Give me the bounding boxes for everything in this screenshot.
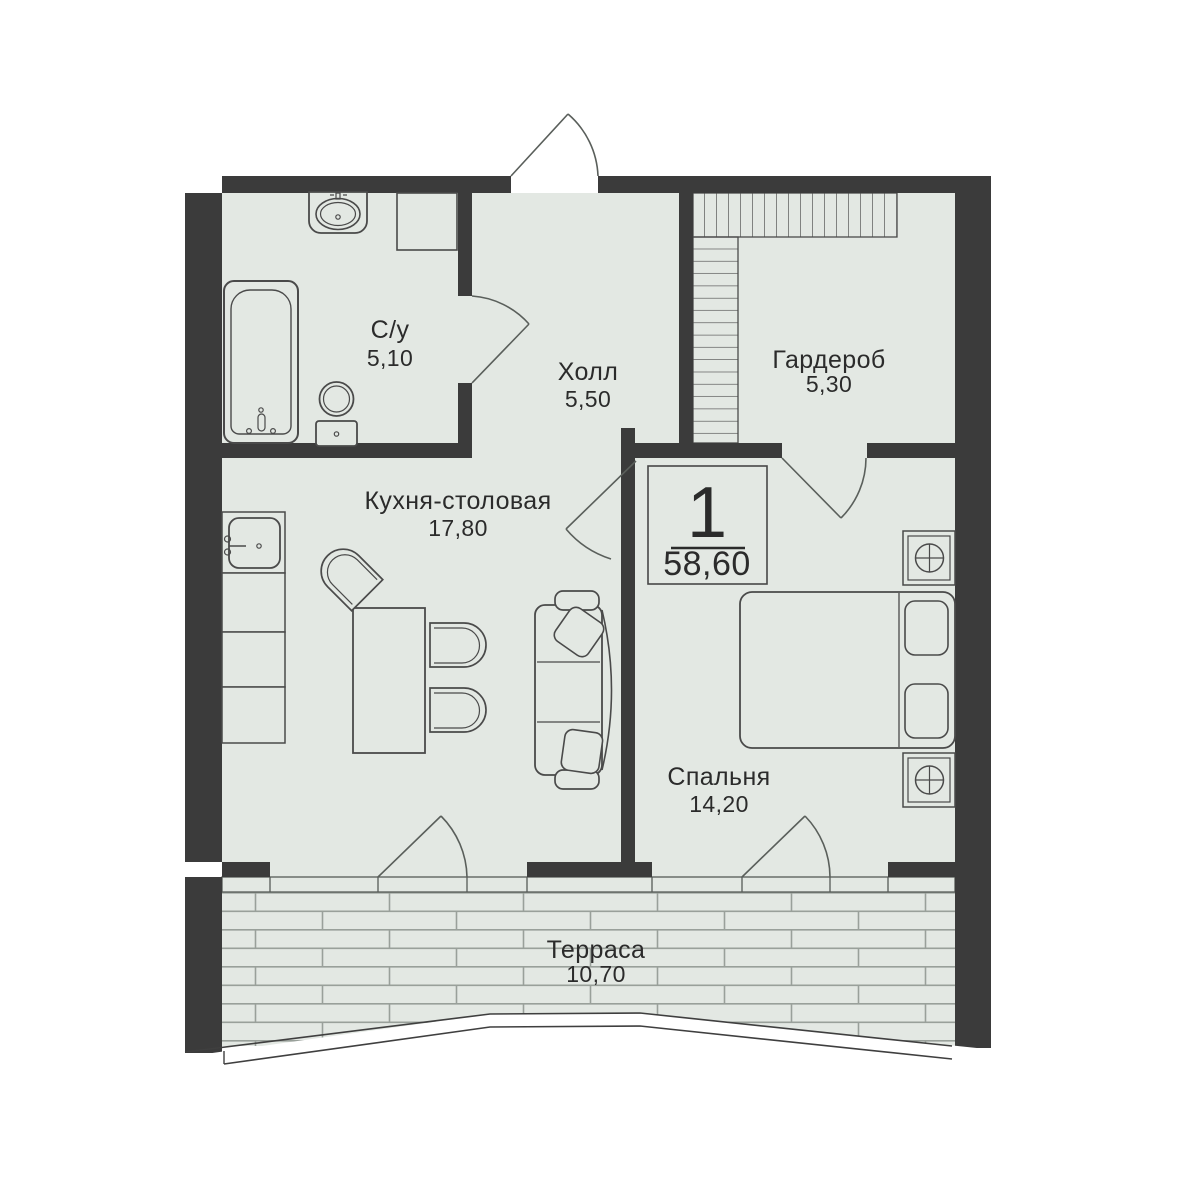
wardrobe-rack-top: [693, 193, 897, 237]
dining-table: [353, 608, 425, 753]
dining-chair-2: [430, 688, 486, 732]
kitchen-sink: [225, 518, 281, 568]
area-wardrobe: 5,30: [806, 371, 852, 397]
unit-total-area: 58,60: [663, 545, 751, 583]
wardrobe-rack-side: [693, 237, 738, 443]
bed: [740, 592, 955, 748]
door-entrance: [511, 114, 598, 176]
label-hall: Холл: [558, 358, 619, 386]
area-hall: 5,50: [565, 386, 611, 412]
label-bathroom: С/у: [371, 316, 410, 344]
bathroom-sink: [309, 192, 367, 233]
bathtub: [224, 281, 298, 443]
area-bedroom: 14,20: [689, 791, 749, 817]
floor-plan: 1 58,60 С/у 5,10 Холл 5,50 Гардероб 5,30…: [0, 0, 1181, 1181]
nightstand-top: [903, 531, 955, 585]
area-bathroom: 5,10: [367, 345, 413, 371]
sofa: [535, 591, 612, 789]
floor-plan-page: 1 58,60 С/у 5,10 Холл 5,50 Гардероб 5,30…: [0, 0, 1181, 1181]
label-bedroom: Спальня: [667, 763, 770, 791]
label-terrace: Терраса: [547, 936, 646, 964]
label-kitchen: Кухня-столовая: [364, 487, 551, 515]
vent-shaft: [397, 193, 457, 250]
label-wardrobe: Гардероб: [772, 346, 885, 374]
nightstand-bottom: [903, 753, 955, 807]
area-terrace: 10,70: [566, 961, 626, 987]
dining-chair-1: [430, 623, 486, 667]
unit-rooms-count: 1: [687, 473, 727, 553]
area-kitchen: 17,80: [428, 515, 488, 541]
unit-info-badge: 1 58,60: [648, 466, 767, 584]
